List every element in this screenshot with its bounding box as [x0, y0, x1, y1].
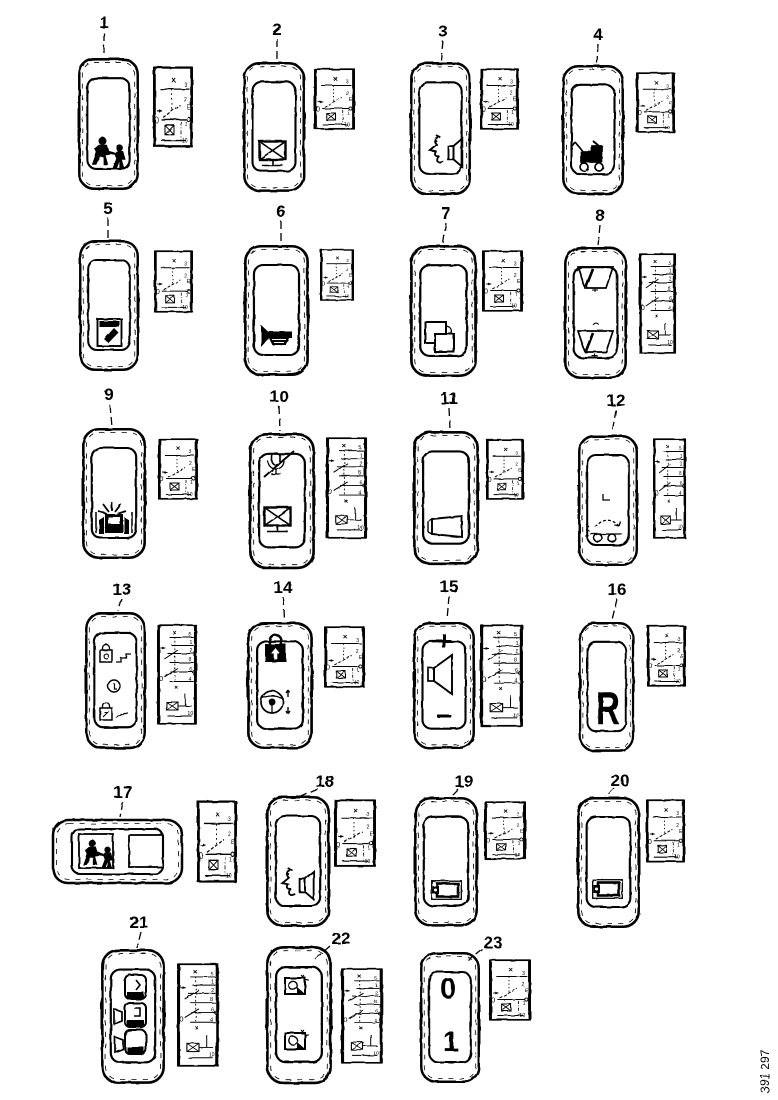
svg-text:14: 14	[274, 578, 293, 597]
svg-text:8: 8	[595, 206, 604, 225]
svg-text:5: 5	[103, 199, 112, 218]
svg-text:11: 11	[440, 389, 458, 408]
svg-text:0: 0	[440, 973, 456, 1005]
svg-text:15: 15	[440, 577, 459, 596]
svg-text:3: 3	[438, 22, 447, 41]
svg-text:R: R	[596, 682, 620, 734]
svg-text:12: 12	[607, 391, 626, 410]
svg-text:17: 17	[114, 783, 133, 802]
svg-text:22: 22	[332, 929, 351, 948]
svg-text:16: 16	[608, 580, 627, 599]
svg-text:20: 20	[611, 771, 630, 790]
svg-text:1: 1	[443, 1026, 459, 1057]
svg-text:13: 13	[113, 580, 132, 599]
svg-text:4: 4	[593, 25, 603, 44]
svg-text:2: 2	[272, 20, 281, 39]
svg-text:391 297: 391 297	[758, 1049, 772, 1093]
svg-text:6: 6	[276, 202, 285, 221]
svg-text:7: 7	[441, 204, 450, 223]
svg-text:10: 10	[270, 387, 289, 406]
svg-text:1: 1	[99, 13, 108, 32]
svg-text:19: 19	[455, 772, 474, 791]
svg-text:18: 18	[316, 772, 335, 791]
svg-text:9: 9	[104, 385, 113, 404]
svg-text:23: 23	[484, 933, 503, 952]
svg-text:21: 21	[130, 913, 149, 932]
